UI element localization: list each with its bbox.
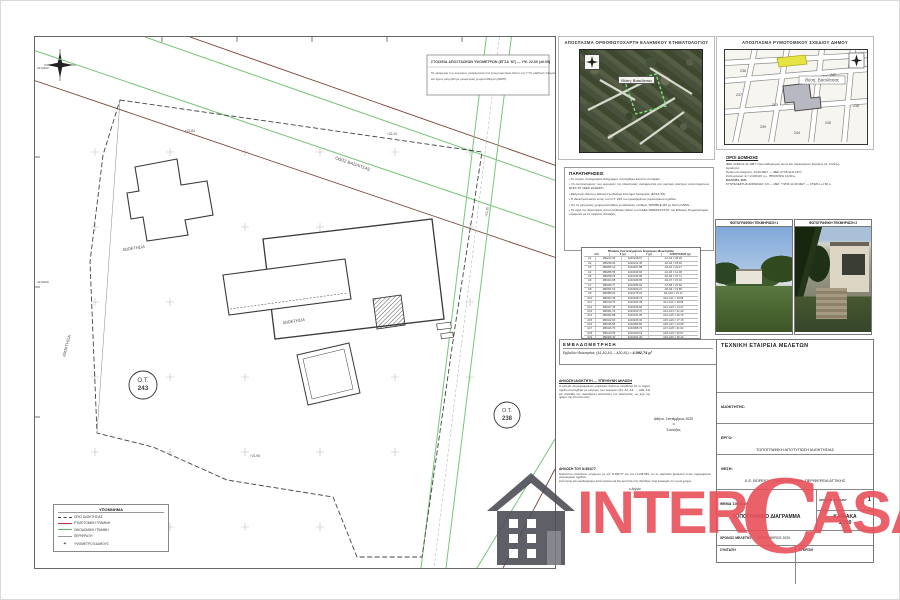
svg-text:+21.84: +21.84 [185,129,195,133]
cell-dist: Α13-Α14 = 21.43 [649,310,698,313]
svg-text:+21.96: +21.96 [250,454,260,458]
observation-item: Το παρόν τοπογραφικό διάγραμμα συντάχθηκ… [569,178,709,182]
cell-id: Α9 [584,292,596,295]
cell-id: Α4 [584,271,596,274]
cell-dist: Α7-Α8 = 22.60 [649,284,698,287]
zoning-map-image: 236 237 238 239 240 242 243 244 Θέση: Βα… [724,49,868,145]
legend-item: ΡΥΜΟΤΟΜΙΚΗ ΓΡΑΜΜΗ [58,521,164,525]
legend-label: ΡΥΜΟΤΟΜΙΚΗ ΓΡΑΜΜΗ [74,521,110,525]
photo-1 [716,227,792,332]
cell-y: 4210196.90 [622,275,648,278]
legend-item: + ΥΨΟΜΕΤΡΟ ΕΔΑΦΟΥΣ [58,541,164,547]
column-header: Υ (μ) [636,253,662,256]
cell-y: 4210186.02 [622,284,648,287]
cell-dist: Α6-Α7 = 15.34 [649,279,698,282]
cell-y: 4210218.67 [622,257,648,260]
cell-y: 4210156.60 [622,306,648,309]
project-label: ΕΡΓΟ: [721,436,733,440]
observation-item: Τα όρια της ιδιοκτησίας αποτυπώθηκαν βάσ… [569,209,709,217]
building-terms-lines: ΦΕΚ 223Δ/14.11.1987: Περί καθορισμού όρω… [726,162,872,186]
legend-item: ΟΙΚΟΔΟΜΙΚΗ ΓΡΑΜΜΗ [58,528,164,532]
location-label: Θέση: Βασιλίτσας [618,76,655,84]
cell-dist: Α4-Α5 = 12.08 [649,271,698,274]
legend-symbol [58,529,72,530]
cell-dist: Α16-Α17 = 23.68 [649,323,698,326]
block-label-ot238: Ο.Τ. 238 [494,402,520,428]
cell-x: 480361.52 [596,288,622,291]
drawing-number-value: 1 [868,497,871,503]
cell-id: Α6 [584,279,596,282]
neighbour-building [127,159,213,241]
area-formula: Εμβαδόν Ιδιοκτησίας: (Α1,Α2,Α3,...,Α20,Α… [563,351,713,355]
cell-x: 480324.98 [596,279,622,282]
cell-x: 480286.55 [596,271,622,274]
cell-x: 480447.45 [596,306,622,309]
cell-x: 480403.78 [596,297,622,300]
building-terms-line: ΣΥΝΤΕΛΕΣΤΗΣ ΔΟΜΗΣΗΣ: 0,6 — ΜΕΓ. ΥΨΟΣ 11.… [726,182,872,186]
cell-y: 4210131.05 [622,314,648,317]
cell-id: Α11 [584,301,596,304]
grid-coordinate-label: 4210200 [37,280,49,284]
owner-section: ΙΔΙΟΚΤΗΤΗΣ: [717,393,873,424]
legend-symbol: + [58,541,72,547]
cell-dist: Α3-Α4 = 32.47 [649,266,698,269]
cell-x: 480452.88 [596,314,622,317]
grid-coordinate-label: 4210400 [37,66,49,70]
cell-y: 4210090.50 [622,323,648,326]
photo-2 [795,227,871,332]
number-scale-cells: ΑΡΙΘΜΟΣ ΣΧΕΔΙΟΥ 1 ΚΛΙΜΑΚΑ 1:200 [817,490,873,530]
cell-y: 4210189.95 [622,279,648,282]
cell-x: 480339.77 [596,284,622,287]
column-header: Χ (μ) [610,253,636,256]
observation-item: Η ιδιοκτησία κείται εντός του Ο.Τ. 243 τ… [569,198,709,202]
cell-x: 480419.70 [596,301,622,304]
north-arrow-icon [44,49,76,81]
cell-id: Α17 [584,327,596,330]
svg-text:και έχουν μετρηθεί με γεωμετρι: και έχουν μετρηθεί με γεωμετρική χωροστά… [431,77,507,81]
study-time-value: ΣΕΠΤΕΜΒΡΙΟΣ 2020 [757,536,790,540]
cell-x: 480435.95 [596,323,622,326]
photo-1-title: ΦΩΤΟΓΡΑΦΙΚΗ ΤΕΚΜΗΡΙΩΣΗ 1 [716,220,792,227]
cell-y: 4210068.72 [622,327,648,330]
declaration-paragraph: Ο κάτωθι υπογεγραμμένος μηχανικός δηλώνω… [559,385,650,400]
elevation-note-box: ΣΤΟΙΧΕΙΑ ΑΠΟΣΤΑΣΕΩΝ ΥΨΟΜΕΤΡΩΝ (ΕΓΣΑ '87)… [427,55,555,95]
street-name-label: ΟΔΟΣ ΒΑΣΙΛΙΤΣΑΣ [335,155,372,172]
cell-id: Α16 [584,323,596,326]
study-time-row: ΧΡΟΝΟΣ ΜΕΛΕΤΗΣ ΣΕΠΤΕΜΒΡΙΟΣ 2020 [717,531,873,546]
map-location-label: Θέση: Βασιλίτσας [805,78,839,83]
svg-text:244: 244 [794,131,800,135]
project-section: ΕΡΓΟ: ΤΟΠΟΓΡΑΦΙΚΗ ΑΠΟΤΥΠΩΣΗ ΙΔΙΟΚΤΗΣΙΑΣ [717,424,873,455]
scale-cell: ΚΛΙΜΑΚΑ 1:200 [817,511,873,531]
observation-item: Εξάρτηση δικτύου: Εθνικό Γεωδαιτικό Σύστ… [569,193,709,197]
drawing-sheet: 4210400 4210200 [0,0,900,600]
legend-item: ΟΡΙΟ ΙΔΙΟΚΤΗΣΙΑΣ [58,515,164,519]
svg-text:239: 239 [760,125,766,129]
legend-item: ΠΕΡΙΦΡΑΞΗ [58,534,164,538]
zoning-map-svg: 236 237 238 239 240 242 243 244 Θέση: Βα… [725,50,867,142]
drawing-subject-cell: ΘΕΜΑ ΣΧΕΔΙΟΥ ΤΟΠΟΓΡΑΦΙΚΟ ΔΙΑΓΡΑΜΜΑ [717,490,817,530]
svg-text:ΣΤΟΙΧΕΙΑ ΑΠΟΣΤΑΣΕΩΝ ΥΨΟΜΕΤΡΩΝ: ΣΤΟΙΧΕΙΑ ΑΠΟΣΤΑΣΕΩΝ ΥΨΟΜΕΤΡΩΝ (ΕΓΣΑ '87)… [431,60,551,64]
cell-id: Α7 [584,284,596,287]
cell-id: Α15 [584,319,596,322]
svg-text:243: 243 [772,103,778,107]
observation-item: Για τις μετρήσεις χρησιμοποιήθηκε γεωδαι… [569,204,709,208]
photo-2-title: ΦΩΤΟΓΡΑΦΙΚΗ ΤΕΚΜΗΡΙΩΣΗ 2 [795,220,871,227]
location-section: ΘΕΣΗ: Χ.Ε. ΒΟΡΕΙΟΥ ΤΟΜΕΑ ΑΘΗΝΩΝ, ΠΕΡΙΦΕΡ… [717,455,873,490]
svg-text:238: 238 [502,416,513,422]
law-651-header: ΔΗΛΩΣΗ ΤΟΥ Ν.651/77 [559,467,711,471]
svg-text:+22.35: +22.35 [484,207,490,218]
company-name: ΤΕΧΝΙΚΗ ΕΤΑΙΡΕΙΑ ΜΕΛΕΤΩΝ [717,340,873,393]
legend-symbol [58,523,72,524]
area-value: 4.092,74 μ² [633,351,652,355]
cell-y: 4210152.70 [622,310,648,313]
svg-text:Ο.Τ.: Ο.Τ. [137,378,148,384]
approval-cell: ΕΓΚΡΙΣΗ [796,546,874,584]
area-measurement-panel: ΕΜΒΑΔΟΜΕΤΡΗΣΗ Εμβαδόν Ιδιοκτησίας: (Α1,Α… [559,339,717,365]
scale-value: 1:200 [839,520,852,526]
signature-role: Συντάξας [654,428,693,433]
cell-dist: Α2-Α3 = 18.92 [649,262,698,265]
cell-id: Α3 [584,266,596,269]
legend-label: ΥΨΟΜΕΤΡΟ ΕΔΑΦΟΥΣ [74,542,109,546]
study-time-label: ΧΡΟΝΟΣ ΜΕΛΕΤΗΣ [720,536,751,540]
cell-dist: Α10-Α11 = 16.58 [649,297,698,300]
title-block: ΤΕΧΝΙΚΗ ΕΤΑΙΡΕΙΑ ΜΕΛΕΤΩΝ ΙΔΙΟΚΤΗΤΗΣ: ΕΡΓ… [716,339,874,563]
svg-text:237: 237 [736,93,742,97]
cell-dist: Α1-Α2 = 25.36 [649,257,698,260]
column-header: Α/Α [584,253,610,256]
photo-2-window [842,254,865,275]
cell-x: 480236.92 [596,262,622,265]
north-compass-icon [584,54,600,70]
cell-x: 480442.60 [596,319,622,322]
location-value: Χ.Ε. ΒΟΡΕΙΟΥ ΤΟΜΕΑ ΑΘΗΝΩΝ, ΠΕΡΙΦΕΡΕΙΑ ΑΤ… [721,478,869,483]
cell-y: 4210175.04 [622,292,648,295]
outbuilding [297,343,360,405]
cell-dist: Α14-Α15 = 26.79 [649,314,698,317]
legend-title: ΥΠΟΜΝΗΜΑ [58,507,164,513]
cell-y: 4210180.21 [622,288,648,291]
law-651-signer: ο Δηλών [559,487,711,491]
cell-y: 4210199.93 [622,271,648,274]
cell-x: 480380.60 [596,292,622,295]
cell-id: Α14 [584,314,596,317]
fence-line [97,100,120,433]
coordinates-table-body: Α1 480212.34 4210218.67 Α1-Α2 = 25.36 Α2… [584,257,698,339]
photo-1-house [736,269,762,284]
cell-id: Α12 [584,306,596,309]
hatched-annex [373,295,405,329]
observation-item: Οι συντεταγμένες των κορυφών της ιδιοκτη… [569,183,709,191]
drawing-number-cell: ΑΡΙΘΜΟΣ ΣΧΕΔΙΟΥ 1 [817,490,873,511]
zoning-map-inset-panel: ΑΠΟΣΠΑΣΜΑ ΡΥΜΟΤΟΜΙΚΟΥ ΣΧΕΔΙΟΥ ΔΗΜΟΥ 236 … [716,36,874,150]
law-651-declaration-panel: ΔΗΛΩΣΗ ΤΟΥ Ν.651/77 Δηλώνεται υπεύθυνα, … [559,467,711,527]
legend-label: ΠΕΡΙΦΡΑΞΗ [74,534,92,538]
cell-y: 4210212.45 [622,262,648,265]
svg-text:+22.10: +22.10 [387,132,397,136]
cell-id: Α5 [584,275,596,278]
photo-panel-2: ΦΩΤΟΓΡΑΦΙΚΗ ΤΕΚΜΗΡΙΩΣΗ 2 [794,219,872,335]
cell-id: Α1 [584,257,596,260]
main-building [223,219,453,339]
drawing-info-row: ΘΕΜΑ ΣΧΕΔΙΟΥ ΤΟΠΟΓΡΑΦΙΚΟ ΔΙΑΓΡΑΜΜΑ ΑΡΙΘΜ… [717,490,873,531]
legend-label: ΟΙΚΟΔΟΜΙΚΗ ΓΡΑΜΜΗ [74,528,109,532]
observations-panel: ΠΑΡΑΤΗΡΗΣΕΙΣ Το παρόν τοπογραφικό διάγρα… [564,167,714,251]
photo-panel-1: ΦΩΤΟΓΡΑΦΙΚΗ ΤΕΚΜΗΡΙΩΣΗ 1 [715,219,793,335]
area-title: ΕΜΒΑΔΟΜΕΤΡΗΣΗ [563,342,713,349]
law-651-line: είναι άρτιο και οικοδομήσιμο κατά κανόνα… [559,480,711,484]
cell-id: Α2 [584,262,596,265]
orthophoto-image: Θέση: Βασιλίτσας [579,49,703,153]
topographic-plan-area: 4210400 4210200 [34,36,556,569]
declaration-panel: ΔΗΛΩΣΗ ΙΔΙΟΚΤΗΤΗ — ΥΠΕΥΘΥΝΗ ΔΗΛΩΣΗ Ο κάτ… [559,379,711,463]
svg-text:243: 243 [138,385,149,392]
svg-text:238: 238 [853,104,859,108]
cell-id: Α18 [584,332,596,335]
cell-dist: Α18-Α19 = 20.57 [649,332,698,335]
project-value: ΤΟΠΟΓΡΑΦΙΚΗ ΑΠΟΤΥΠΩΣΗ ΙΔΙΟΚΤΗΣΙΑΣ [721,447,869,452]
cell-y: 4210106.32 [622,319,648,322]
cell-dist: Α11-Α12 = 28.96 [649,301,698,304]
cell-id: Α8 [584,288,596,291]
legend-symbol [58,536,72,537]
cell-y: 4210207.88 [622,266,648,269]
signature-columns: ΣΥΝΤΑΞΗ ΕΓΚΡΙΣΗ [717,546,873,584]
area-formula-text: Εμβαδόν Ιδιοκτησίας: (Α1,Α2,Α3,...,Α20,Α… [563,351,632,355]
legend-label: ΟΡΙΟ ΙΔΙΟΚΤΗΣΙΑΣ [74,515,103,519]
cell-x: 480414.55 [596,332,622,335]
photo-2-stairs [816,288,846,320]
cell-x: 480298.23 [596,275,622,278]
drafting-cell: ΣΥΝΤΑΞΗ [717,546,796,584]
observations-list: Το παρόν τοπογραφικό διάγραμμα συντάχθηκ… [569,178,709,217]
cell-dist: Α8-Α9 = 19.85 [649,288,698,291]
cell-x: 480212.34 [596,257,622,260]
drawing-subject-label: ΘΕΜΑ ΣΧΕΔΙΟΥ [720,502,749,506]
observations-title: ΠΑΡΑΤΗΡΗΣΕΙΣ [569,171,709,176]
parcel-label: ΙΔΙΟΚΤΗΣΙΑ [61,334,72,357]
cell-dist: Α9-Α10 = 24.12 [649,292,698,295]
location-label: ΘΕΣΗ: [721,467,733,471]
cell-y: 4210164.35 [622,301,648,304]
block-label-ot243: Ο.Τ. 243 [129,371,157,399]
map-north-icon [849,53,864,68]
cell-dist: Α15-Α16 = 17.15 [649,319,698,322]
cell-id: Α10 [584,297,596,300]
svg-text:240: 240 [825,121,831,125]
cell-dist: Α5-Α6 = 27.71 [649,275,698,278]
owner-label: ΙΔΙΟΚΤΗΤΗΣ: [721,405,745,409]
parcel-label: ΙΔΙΟΚΤΗΣΙΑ [122,244,145,252]
building-terms-panel: ΟΡΟΙ ΔΟΜΗΣΗΣ ΦΕΚ 223Δ/14.11.1987: Περί κ… [723,153,875,219]
column-header: ΑΠΟΣΤΑΣΕΙΣ (μ) [662,253,698,256]
drawing-subject-value: ΤΟΠΟΓΡΑΦΙΚΟ ΔΙΑΓΡΑΜΜΑ [720,514,813,520]
cell-x: 480461.10 [596,310,622,313]
cell-y: 4210040.18 [622,332,648,335]
declaration-header: ΔΗΛΩΣΗ ΙΔΙΟΚΤΗΤΗ — ΥΠΕΥΘΥΝΗ ΔΗΛΩΣΗ [559,379,711,383]
cell-dist: Α12-Α13 = 14.27 [649,306,698,309]
building-terms-title: ΟΡΟΙ ΔΟΜΗΣΗΣ [726,155,872,160]
signature-block: Αθήνα, Σεπτέμβριος 2020 ο Συντάξας [654,417,693,433]
svg-text:236: 236 [740,69,746,73]
drawing-number-label: ΑΡΙΘΜΟΣ ΣΧΕΔΙΟΥ [819,498,868,502]
legend-symbol [58,517,72,518]
cell-y: 4210168.73 [622,297,648,300]
cell-x: 480426.70 [596,327,622,330]
legend: ΥΠΟΜΝΗΜΑ ΟΡΙΟ ΙΔΙΟΚΤΗΣΙΑΣ ΡΥΜΟΤΟΜΙΚΗ ΓΡΑ… [53,504,169,552]
svg-text:Ο.Τ.: Ο.Τ. [502,408,513,414]
zoning-map-title: ΑΠΟΣΠΑΣΜΑ ΡΥΜΟΤΟΜΙΚΟΥ ΣΧΕΔΙΟΥ ΔΗΜΟΥ [717,40,873,45]
coordinates-table-panel: Πίνακας Συντεταγμένων Κορυφών Ιδιοκτησία… [581,247,701,339]
cell-x: 480255.10 [596,266,622,269]
plan-svg: 4210400 4210200 [35,37,555,568]
legend-items: ΟΡΙΟ ΙΔΙΟΚΤΗΣΙΑΣ ΡΥΜΟΤΟΜΙΚΗ ΓΡΑΜΜΗ ΟΙΚΟΔ… [58,515,164,547]
orthophoto-title: ΑΠΟΣΠΑΣΜΑ ΟΡΘΟΦΩΤΟΧΑΡΤΗ ΕΛΛΗΝΙΚΟΥ ΚΤΗΜΑΤ… [559,40,714,45]
cell-id: Α13 [584,310,596,313]
svg-text:Τα υψόμετρα των κορυφών αναφέρ: Τα υψόμετρα των κορυφών αναφέρονται στο … [431,71,555,75]
orthophoto-inset-panel: ΑΠΟΣΠΑΣΜΑ ΟΡΘΟΦΩΤΟΧΑΡΤΗ ΕΛΛΗΝΙΚΟΥ ΚΤΗΜΑΤ… [558,36,715,160]
cell-dist: Α17-Α18 = 31.02 [649,327,698,330]
law-651-lines: Δηλώνεται υπεύθυνα, σύμφωνα με τον Ν.651… [559,473,711,484]
